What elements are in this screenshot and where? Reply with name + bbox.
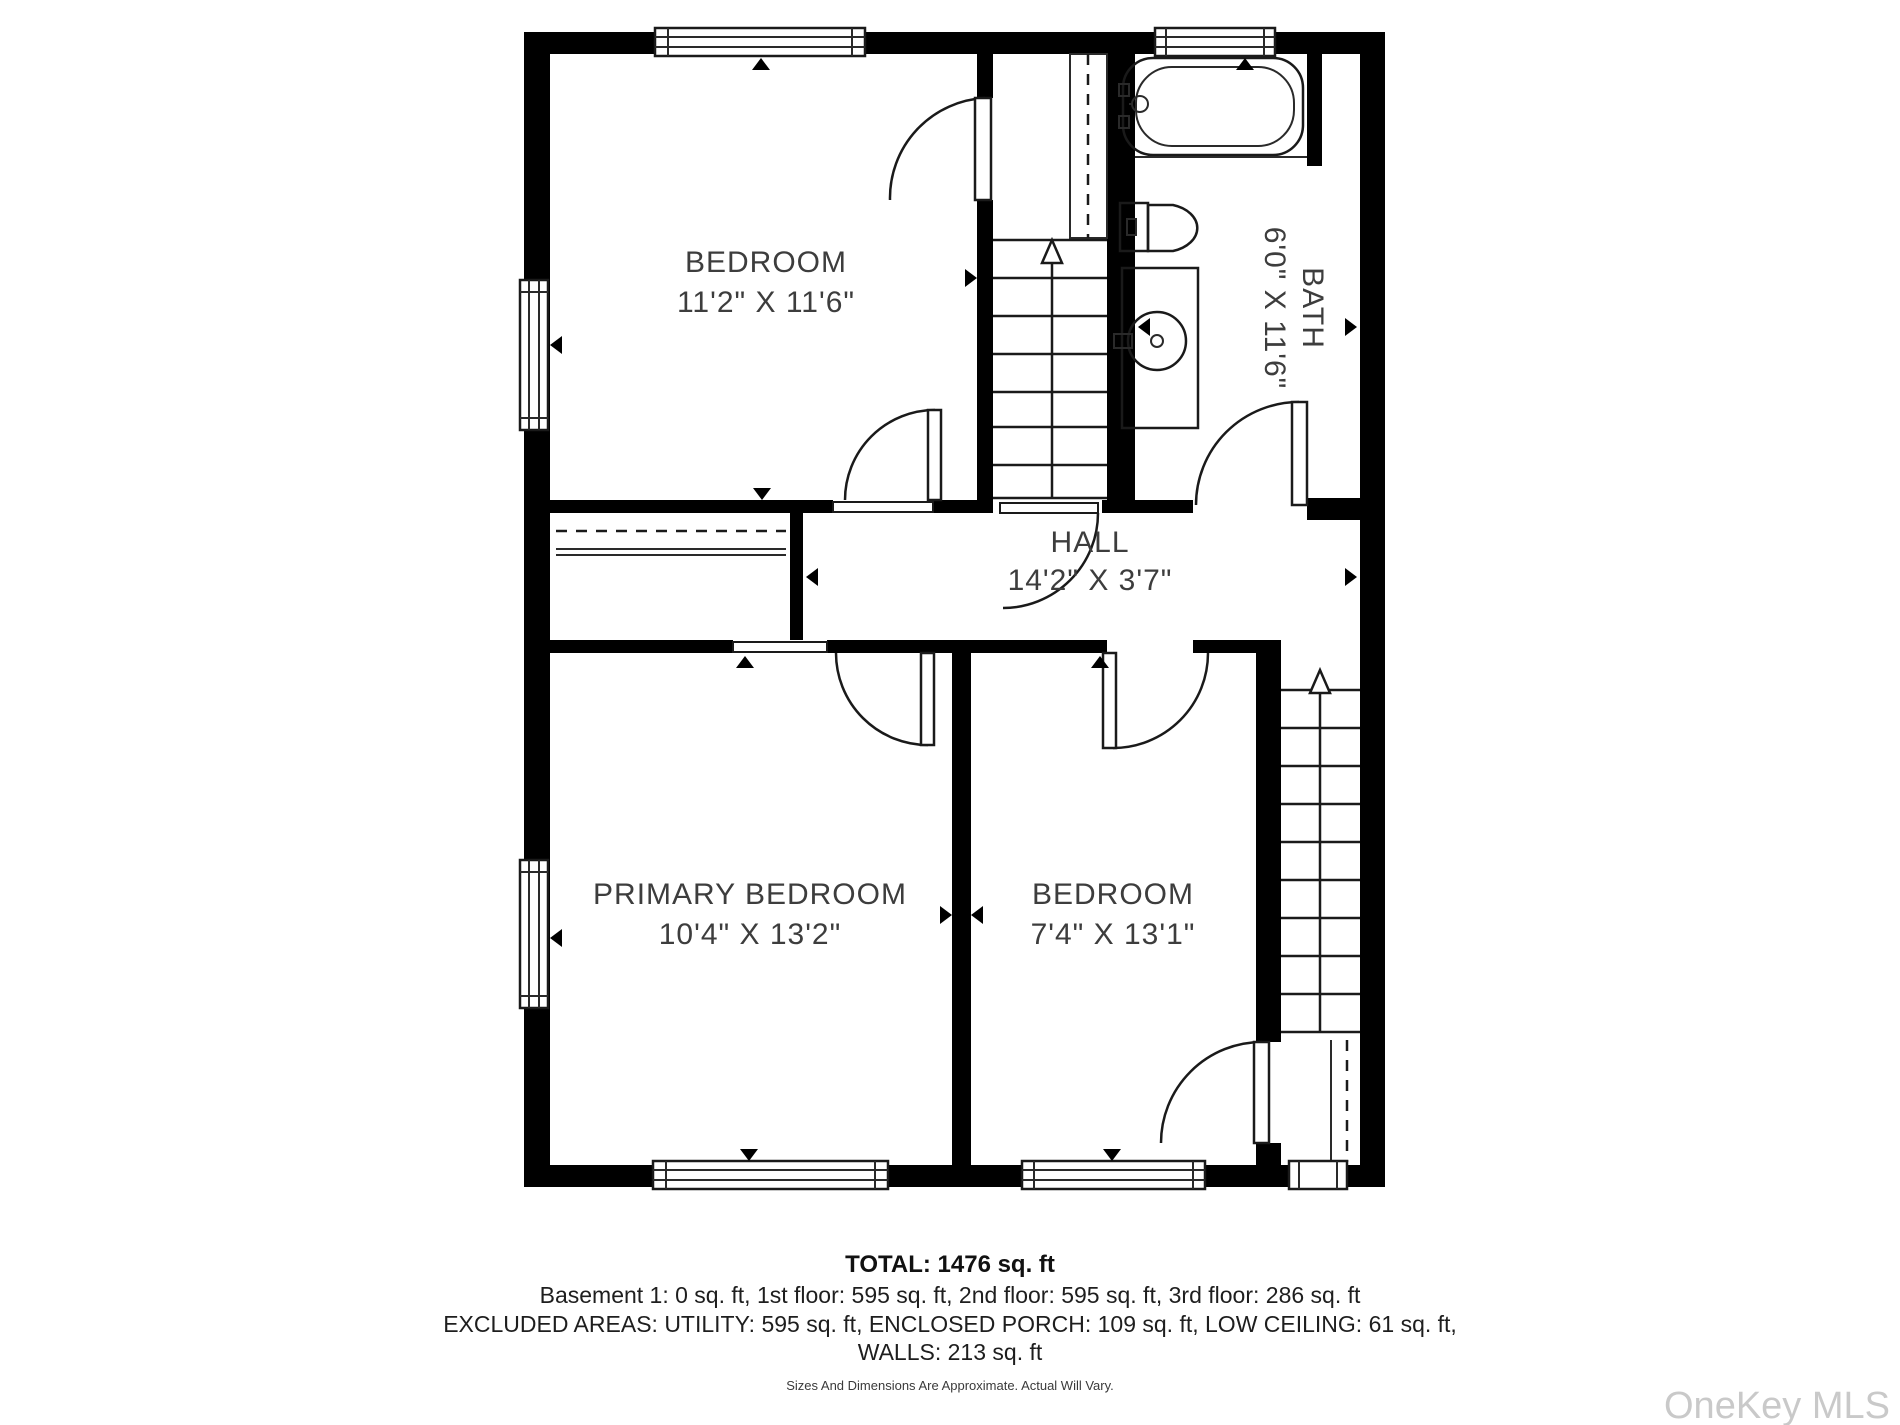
closet: [556, 531, 786, 555]
closet-opening: [733, 642, 827, 652]
room-label-primary-bedroom: PRIMARY BEDROOM: [593, 878, 907, 911]
door: [1161, 1042, 1269, 1143]
wall: [1256, 1143, 1281, 1165]
wall: [524, 32, 550, 1187]
room-label-bedroom-right: BEDROOM: [1032, 878, 1194, 911]
wall: [977, 200, 993, 513]
door: [1196, 402, 1307, 505]
summary-excluded: EXCLUDED AREAS: UTILITY: 595 sq. ft, ENC…: [443, 1311, 1457, 1337]
door: [890, 98, 991, 200]
wall: [1102, 500, 1193, 513]
floorplan-page: BEDROOM 11'2" X 11'6" BATH 6'0" X 11'6" …: [0, 0, 1900, 1425]
window: [520, 280, 548, 430]
window: [1289, 1161, 1347, 1189]
watermark-onekey-mls: OneKey MLS: [1664, 1385, 1890, 1425]
room-label-bath-group: BATH 6'0" X 11'6": [1258, 227, 1329, 390]
windows: [520, 28, 1347, 1189]
wall: [790, 513, 803, 640]
room-label-bedroom-top: BEDROOM: [685, 246, 847, 279]
room-dims-hall: 14'2" X 3'7": [1008, 564, 1173, 597]
window: [1155, 28, 1275, 56]
stairs-up-arrow-icon: [1310, 670, 1330, 693]
window: [520, 860, 548, 1008]
wall: [524, 640, 733, 653]
summary-disclaimer: Sizes And Dimensions Are Approximate. Ac…: [786, 1378, 1114, 1393]
summary-total: TOTAL: 1476 sq. ft: [845, 1251, 1055, 1278]
wall: [933, 500, 977, 513]
wall: [1360, 32, 1385, 1187]
door: [1103, 653, 1208, 748]
wall: [1256, 653, 1281, 1042]
window: [655, 28, 865, 56]
door: [836, 653, 934, 745]
door: [833, 410, 941, 512]
summary-block: TOTAL: 1476 sq. ft Basement 1: 0 sq. ft,…: [443, 1251, 1457, 1393]
room-label-bath: BATH: [1296, 267, 1329, 349]
wall: [1307, 54, 1322, 166]
wall: [524, 500, 833, 513]
room-dims-bedroom-right: 7'4" X 13'1": [1031, 918, 1196, 951]
stairs-up-arrow-icon: [1042, 240, 1062, 263]
wall: [952, 653, 971, 1165]
room-dims-bath: 6'0" X 11'6": [1258, 227, 1291, 390]
wall: [827, 640, 1107, 653]
window: [1022, 1161, 1205, 1189]
room-dims-primary-bedroom: 10'4" X 13'2": [659, 918, 842, 951]
room-dims-bedroom-top: 11'2" X 11'6": [677, 286, 855, 319]
wall: [1193, 640, 1281, 653]
window: [653, 1161, 888, 1189]
floorplan-canvas: BEDROOM 11'2" X 11'6" BATH 6'0" X 11'6" …: [0, 0, 1900, 1425]
stairs-right: [1281, 670, 1360, 1162]
room-label-hall: HALL: [1050, 526, 1129, 559]
summary-walls: WALLS: 213 sq. ft: [858, 1339, 1043, 1365]
walls: [524, 32, 1385, 1187]
bathtub-icon: [1119, 58, 1303, 155]
wall: [1307, 498, 1360, 520]
stairs-center: [993, 54, 1107, 498]
wall: [977, 54, 993, 98]
summary-floors: Basement 1: 0 sq. ft, 1st floor: 595 sq.…: [540, 1282, 1361, 1308]
